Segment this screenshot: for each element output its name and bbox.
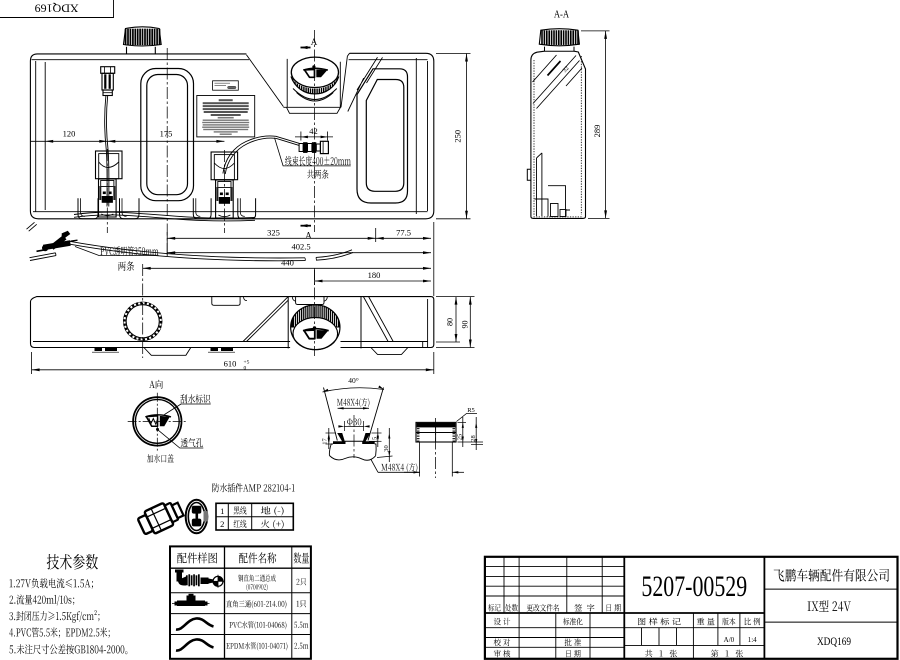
svg-text:A-A: A-A <box>554 9 569 21</box>
svg-text:440: 440 <box>281 257 294 267</box>
svg-text:XDQ169: XDQ169 <box>35 2 79 16</box>
svg-text:250: 250 <box>453 130 463 143</box>
svg-text:A/0: A/0 <box>724 636 735 644</box>
svg-text:80: 80 <box>446 318 455 326</box>
svg-text:A: A <box>311 37 318 47</box>
svg-text:120: 120 <box>63 129 76 139</box>
svg-text:17: 17 <box>322 438 329 445</box>
svg-text:90: 90 <box>460 321 469 329</box>
svg-text:5207-00529: 5207-00529 <box>641 570 747 603</box>
svg-text:XDQ169: XDQ169 <box>817 636 851 648</box>
svg-text:289: 289 <box>592 125 602 138</box>
svg-text:A: A <box>305 231 312 241</box>
svg-text:402.5: 402.5 <box>291 242 310 252</box>
svg-text:42: 42 <box>309 126 318 136</box>
svg-text:1: 1 <box>220 506 224 516</box>
svg-text:15: 15 <box>372 437 379 444</box>
svg-text:77.5: 77.5 <box>396 228 411 238</box>
svg-text:R5: R5 <box>467 407 475 414</box>
svg-text:25: 25 <box>457 434 464 441</box>
svg-text:0: 0 <box>244 366 247 372</box>
svg-text:1:4: 1:4 <box>748 636 757 644</box>
svg-text:175: 175 <box>160 129 173 139</box>
svg-text:610: 610 <box>224 359 237 369</box>
svg-text:2: 2 <box>220 519 224 529</box>
svg-text:325: 325 <box>267 228 280 238</box>
svg-text:180: 180 <box>368 270 381 280</box>
svg-text:40°: 40° <box>348 376 359 385</box>
svg-text:30: 30 <box>383 445 390 452</box>
svg-text:28: 28 <box>470 435 477 442</box>
